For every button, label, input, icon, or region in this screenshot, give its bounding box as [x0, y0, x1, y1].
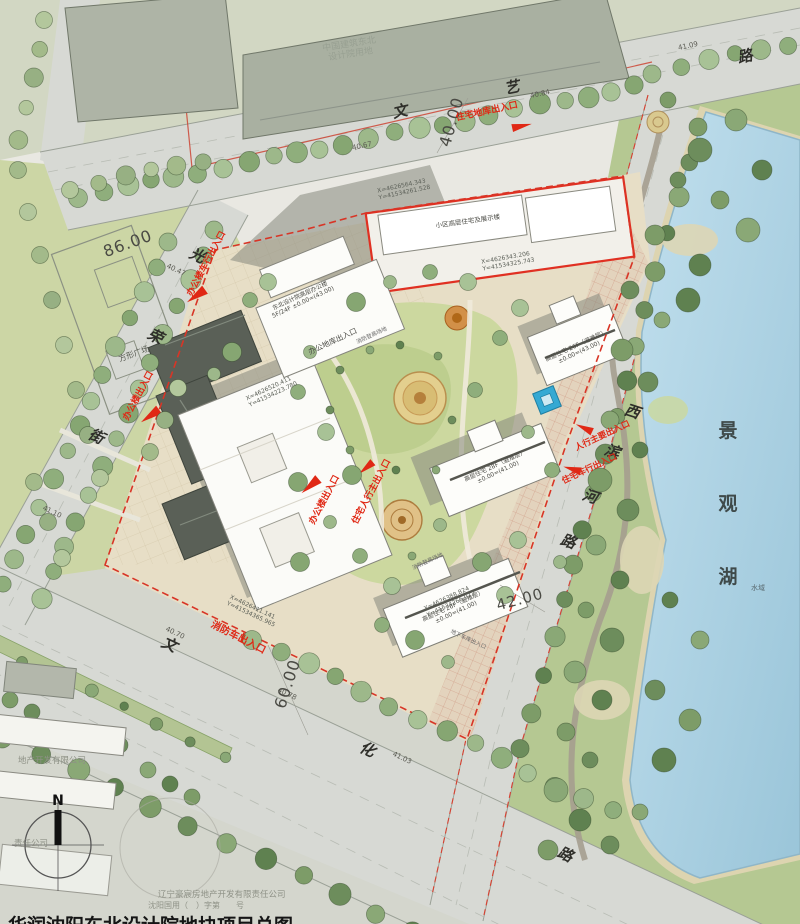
tree — [318, 424, 335, 441]
tree — [592, 690, 612, 710]
tree — [24, 68, 43, 87]
tree — [711, 191, 729, 209]
tree — [299, 653, 320, 674]
tree — [329, 883, 351, 905]
tree — [536, 668, 552, 684]
tree — [442, 656, 455, 669]
tree — [144, 162, 159, 177]
tree — [670, 172, 686, 188]
tree — [752, 160, 772, 180]
tree — [44, 469, 64, 489]
tree — [408, 552, 416, 560]
tree — [80, 427, 97, 444]
tree — [467, 735, 484, 752]
tree — [636, 302, 653, 319]
tree — [689, 118, 707, 136]
tree — [105, 337, 125, 357]
tree — [291, 553, 310, 572]
tree — [162, 776, 178, 792]
tree — [157, 412, 174, 429]
tree — [169, 298, 185, 314]
tree — [82, 392, 100, 410]
tree — [529, 93, 550, 114]
tree — [170, 380, 187, 397]
tree — [336, 366, 344, 374]
tree — [347, 293, 366, 312]
tree — [32, 41, 48, 57]
tree — [142, 444, 159, 461]
tree — [60, 443, 76, 459]
tree — [195, 247, 212, 264]
tree — [243, 631, 262, 650]
tree — [181, 270, 201, 290]
tree — [544, 778, 568, 802]
tree — [557, 592, 573, 608]
tree — [676, 288, 700, 312]
tree — [406, 631, 425, 650]
tree — [625, 76, 643, 94]
title-block: 辽宁豪宸房地产开发有限责任公司 沈阳国用（ ）字第 号 华润沈阳东北设计院地块项… — [8, 888, 299, 924]
tree — [9, 131, 28, 150]
tree — [178, 817, 197, 836]
tree — [68, 382, 85, 399]
tree — [289, 473, 308, 492]
tree — [153, 324, 173, 344]
tree — [491, 747, 512, 768]
site-plan-canvas — [0, 0, 800, 924]
tree — [538, 840, 558, 860]
tree — [699, 49, 719, 69]
tree — [645, 225, 665, 245]
tree — [586, 535, 606, 555]
tree — [557, 723, 575, 741]
tree — [392, 466, 400, 474]
tree — [554, 556, 567, 569]
tree — [62, 182, 79, 199]
tree — [455, 111, 475, 131]
tree — [32, 247, 49, 264]
tree — [605, 802, 622, 819]
tree — [611, 571, 629, 589]
tree — [617, 371, 637, 391]
tree — [522, 426, 535, 439]
tree — [36, 12, 53, 29]
drawing-title: 华润沈阳东北设计院地块项目总图 — [8, 911, 299, 924]
tree — [545, 463, 560, 478]
tree — [384, 578, 401, 595]
tree — [545, 627, 565, 647]
tree — [578, 602, 594, 618]
tree — [669, 187, 689, 207]
tree — [343, 466, 362, 485]
tree — [291, 385, 306, 400]
tree — [437, 721, 458, 742]
tree — [423, 265, 438, 280]
tree — [92, 470, 109, 487]
tree — [273, 643, 291, 661]
tree — [632, 442, 648, 458]
tree — [159, 233, 177, 251]
tree — [573, 521, 591, 539]
tree — [643, 65, 661, 83]
tree — [396, 341, 404, 349]
tree — [448, 416, 456, 424]
tree — [780, 37, 797, 54]
tree — [497, 587, 514, 604]
tree — [358, 129, 378, 149]
tree — [66, 513, 84, 531]
developer-name: 辽宁豪宸房地产开发有限责任公司 — [158, 888, 299, 900]
tree — [266, 147, 283, 164]
tree — [725, 109, 747, 131]
tree — [386, 123, 403, 140]
tree — [569, 809, 591, 831]
tree — [56, 337, 73, 354]
tree — [26, 474, 43, 491]
tree — [116, 166, 135, 185]
tree — [150, 718, 163, 731]
tree — [505, 100, 523, 118]
tree — [654, 312, 670, 328]
tree — [120, 702, 129, 711]
tree — [260, 274, 277, 291]
tree — [578, 87, 599, 108]
tree — [239, 151, 260, 172]
tree — [134, 282, 154, 302]
tree — [645, 680, 665, 700]
tree — [149, 259, 166, 276]
tree — [91, 175, 107, 191]
tree — [130, 380, 148, 398]
tree — [122, 310, 138, 326]
tree — [493, 331, 508, 346]
tree — [5, 550, 24, 569]
cert-number: 沈阳国用（ ）字第 号 — [148, 900, 299, 911]
tree — [40, 514, 57, 531]
tree — [595, 444, 615, 464]
tree — [109, 431, 125, 447]
tree — [353, 549, 368, 564]
tree — [384, 276, 397, 289]
tree — [16, 525, 34, 543]
tree — [601, 411, 619, 429]
tree — [214, 159, 233, 178]
tree — [351, 681, 372, 702]
tree — [588, 468, 612, 492]
tree — [564, 661, 586, 683]
tree — [346, 446, 354, 454]
tree — [85, 684, 98, 697]
tree — [68, 759, 90, 781]
tree — [564, 555, 583, 574]
tree — [632, 804, 648, 820]
tree — [511, 740, 529, 758]
tree — [119, 403, 139, 423]
tree — [32, 589, 52, 609]
tree — [140, 762, 156, 778]
tree — [2, 692, 18, 708]
tree — [688, 138, 712, 162]
tree — [208, 368, 221, 381]
tree — [617, 499, 639, 521]
tree — [736, 218, 760, 242]
tree — [519, 765, 536, 782]
tree — [460, 274, 477, 291]
tree — [20, 204, 37, 221]
tree — [255, 848, 277, 870]
tree — [601, 836, 619, 854]
tree — [380, 698, 398, 716]
tree — [621, 281, 639, 299]
tree — [727, 46, 743, 62]
tree — [434, 117, 451, 134]
tree — [326, 406, 334, 414]
tree — [522, 704, 541, 723]
tree — [479, 106, 498, 125]
tree — [327, 668, 344, 685]
site-plan: 文 艺 路 光 荣 街 文 化 路 西 滨 河 路 40.00 60.00 42… — [0, 0, 800, 924]
tree — [80, 487, 96, 503]
tree — [223, 343, 242, 362]
tree — [574, 789, 594, 809]
tree — [557, 92, 574, 109]
tree — [375, 618, 390, 633]
tree — [473, 553, 492, 572]
tree — [185, 737, 195, 747]
tree — [468, 383, 483, 398]
tree — [434, 352, 442, 360]
tree — [44, 292, 61, 309]
tree — [31, 499, 47, 515]
tree — [673, 59, 690, 76]
tree — [660, 92, 676, 108]
tree — [510, 532, 527, 549]
tree — [167, 156, 186, 175]
tree — [409, 710, 428, 729]
tree — [324, 516, 337, 529]
tree — [432, 466, 440, 474]
tree — [600, 628, 624, 652]
tree — [295, 867, 313, 885]
tree — [366, 346, 374, 354]
tree — [602, 83, 620, 101]
tree — [10, 162, 27, 179]
tree — [366, 905, 384, 923]
tree — [611, 339, 633, 361]
tree — [679, 709, 701, 731]
tree — [286, 142, 307, 163]
tree — [434, 519, 447, 532]
tree — [691, 631, 709, 649]
tree — [638, 372, 658, 392]
tree — [512, 300, 529, 317]
tree — [94, 366, 111, 383]
tree — [662, 592, 678, 608]
tree — [220, 752, 231, 763]
tree — [205, 221, 223, 239]
tree — [19, 100, 34, 115]
tree — [582, 752, 598, 768]
tree — [304, 346, 317, 359]
tree — [652, 748, 676, 772]
tree — [751, 40, 771, 60]
tree — [409, 117, 430, 138]
tree — [645, 262, 665, 282]
tree — [141, 354, 158, 371]
tree — [195, 154, 211, 170]
tree — [54, 550, 71, 567]
tree — [311, 141, 328, 158]
tree — [333, 136, 352, 155]
tree — [243, 293, 258, 308]
tree — [689, 254, 711, 276]
